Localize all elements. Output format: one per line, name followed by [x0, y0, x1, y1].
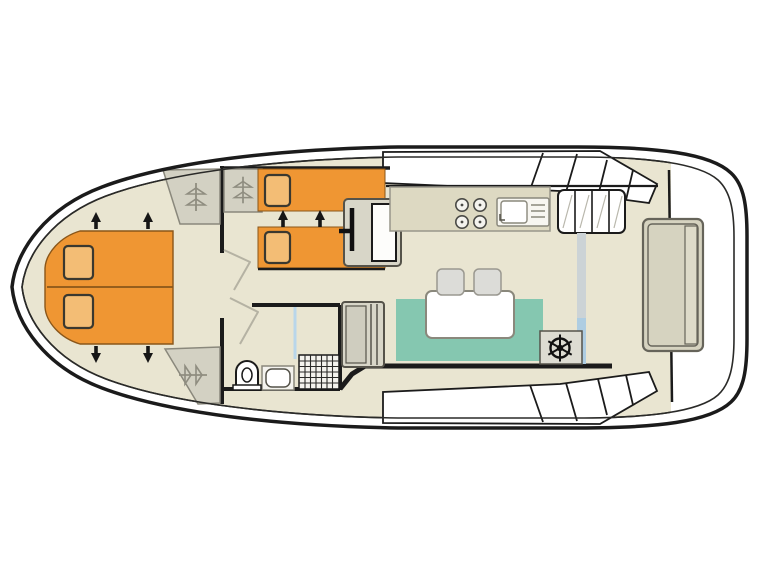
- galley-sink: [497, 198, 549, 226]
- bed-pillow: [64, 295, 93, 328]
- deck-steps: [558, 190, 625, 233]
- stool: [437, 269, 464, 295]
- salon-table: [426, 291, 514, 338]
- floor-plan-canvas: [0, 0, 768, 576]
- bow-double-bed: [45, 231, 173, 344]
- bed-pillow: [265, 232, 290, 263]
- stern-bench: [643, 219, 703, 351]
- cabin-steps: [342, 302, 384, 367]
- stool: [474, 269, 501, 295]
- wardrobe-mid-cabin: [224, 169, 262, 212]
- galley: [390, 187, 550, 231]
- washbasin: [262, 366, 294, 390]
- toilet-icon: [233, 361, 261, 390]
- boat-floor-plan: [0, 0, 768, 576]
- helm-station: [540, 331, 582, 364]
- bed-pillow: [265, 175, 290, 206]
- bed-pillow: [64, 246, 93, 279]
- shower-tray: [299, 355, 339, 389]
